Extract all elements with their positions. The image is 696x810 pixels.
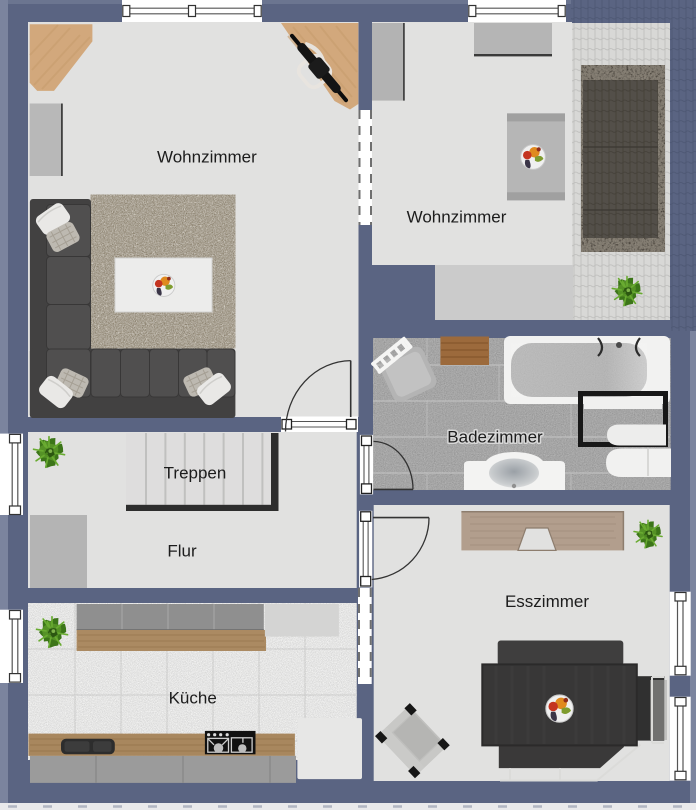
svg-text:Badezimmer: Badezimmer [447,428,543,447]
svg-text:Wohnzimmer: Wohnzimmer [157,147,257,166]
svg-text:Flur: Flur [167,542,197,561]
svg-text:Treppen: Treppen [164,463,227,482]
svg-text:Küche: Küche [169,688,217,707]
svg-text:Esszimmer: Esszimmer [505,592,589,611]
svg-text:Wohnzimmer: Wohnzimmer [407,208,507,227]
